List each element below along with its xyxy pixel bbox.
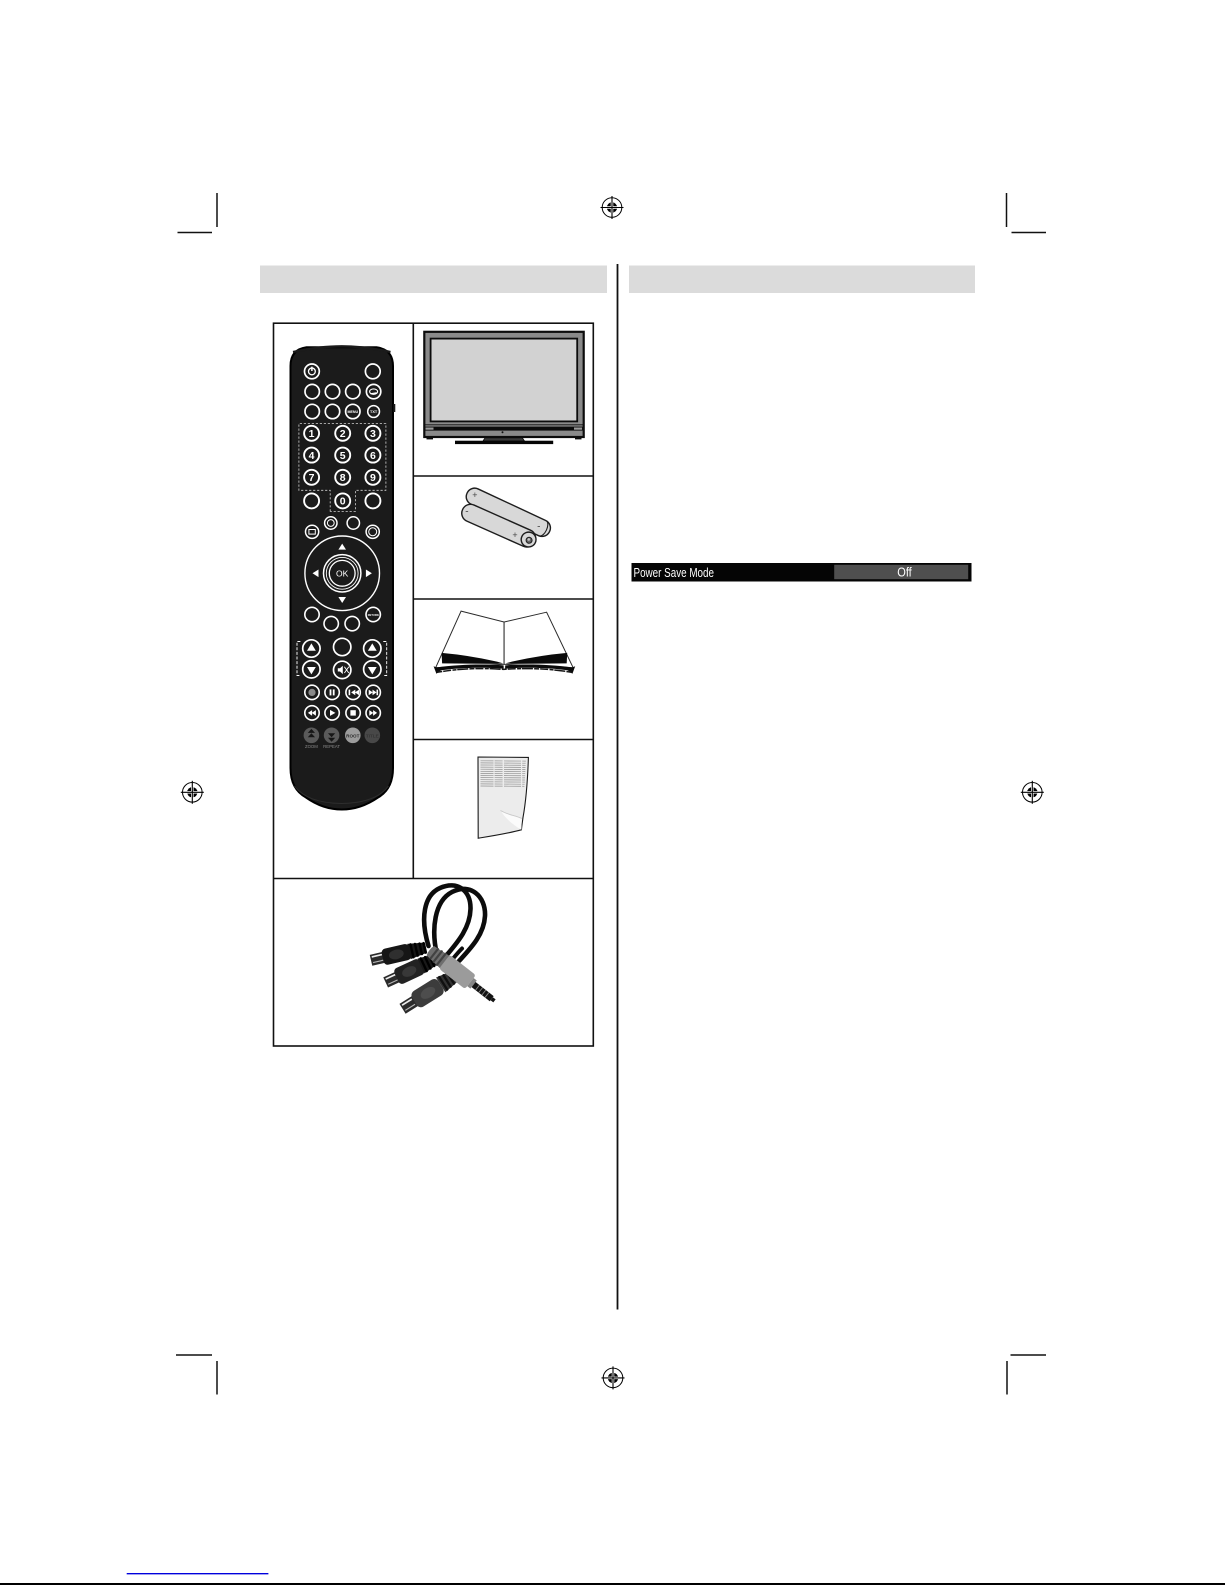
- svg-text:Off: Off: [897, 566, 912, 580]
- svg-text:+: +: [472, 490, 477, 500]
- svg-text:6: 6: [370, 450, 376, 462]
- svg-text:-: -: [537, 521, 540, 532]
- svg-text:9: 9: [370, 472, 376, 484]
- svg-text:7: 7: [309, 472, 315, 484]
- svg-text:OK: OK: [336, 569, 349, 579]
- svg-text:1: 1: [309, 428, 315, 440]
- svg-text:8: 8: [340, 472, 346, 484]
- svg-text:-: -: [465, 507, 468, 518]
- svg-text:Power Save Mode: Power Save Mode: [634, 565, 715, 580]
- svg-text:TITLE: TITLE: [366, 733, 379, 738]
- svg-text:MENU: MENU: [348, 410, 359, 414]
- svg-text:TXT: TXT: [370, 410, 378, 414]
- svg-text:RETURN: RETURN: [368, 613, 379, 617]
- svg-text:3: 3: [370, 428, 376, 440]
- svg-text:0: 0: [340, 496, 346, 508]
- svg-text:ROOT: ROOT: [346, 733, 359, 738]
- svg-text:REPEAT: REPEAT: [323, 744, 340, 749]
- svg-text:ZOOM: ZOOM: [305, 744, 318, 749]
- svg-text:+: +: [512, 530, 517, 540]
- svg-text:5: 5: [340, 450, 346, 462]
- svg-text:4: 4: [309, 450, 315, 462]
- svg-text:2: 2: [340, 428, 346, 440]
